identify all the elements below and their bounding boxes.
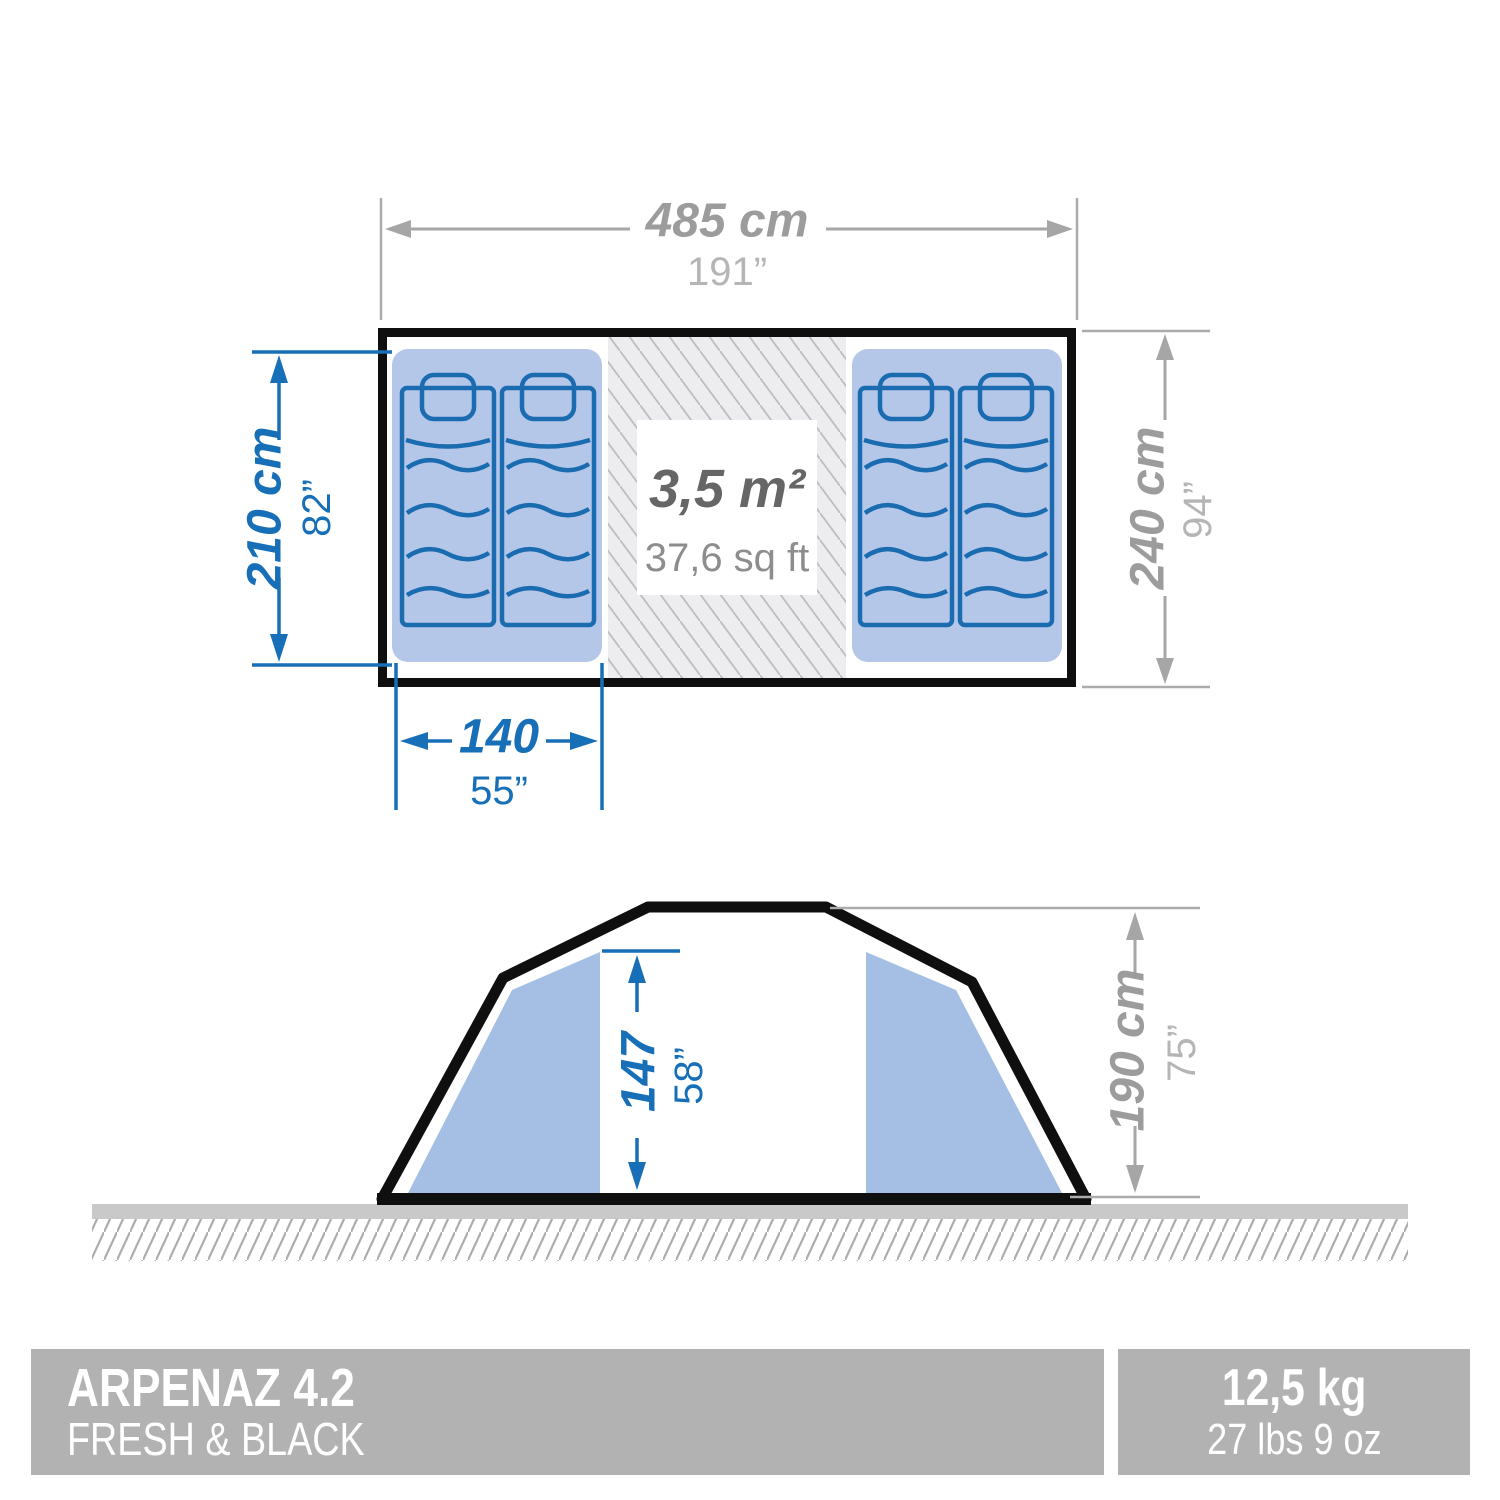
arrowhead-right (1047, 220, 1073, 238)
bedroom-length-in: 82” (295, 479, 339, 537)
bedroom-width-cm: 140 (459, 711, 539, 764)
arrowhead-left (385, 220, 411, 238)
arrowhead-up (270, 355, 288, 383)
depth-in: 94” (1176, 481, 1220, 539)
interior-height-in: 58” (667, 1047, 711, 1105)
interior-height-cm: 147 (613, 1030, 666, 1112)
bedroom-length-cm: 210 cm (239, 427, 292, 591)
weight-lb: 27 lbs 9 oz (1207, 1416, 1382, 1464)
floor-plan: 3,5 m² 37,6 sq ft 485 cm 191” 240 cm 94” (239, 195, 1221, 814)
arrowhead-down (270, 634, 288, 662)
product-line: FRESH & BLACK (67, 1416, 365, 1464)
product-model: ARPENAZ 4.2 (67, 1360, 355, 1416)
living-area-m2: 3,5 m² (649, 459, 807, 519)
product-name-bar: ARPENAZ 4.2 FRESH & BLACK (31, 1349, 1104, 1475)
arrowhead-up (1126, 912, 1144, 940)
dim-depth: 240 cm 94” (1082, 331, 1220, 687)
width-in: 191” (687, 250, 767, 294)
bedroom-width-in: 55” (470, 769, 528, 813)
exterior-height-in: 75” (1160, 1024, 1204, 1082)
weight-kg: 12,5 kg (1222, 1360, 1367, 1416)
arrowhead-up (1156, 334, 1174, 360)
arrowhead-down (1126, 1165, 1144, 1193)
arrowhead-down (1156, 658, 1174, 684)
diagram-canvas: 3,5 m² 37,6 sq ft 485 cm 191” 240 cm 94” (0, 0, 1500, 1500)
arrowhead-left (400, 732, 428, 750)
depth-cm: 240 cm (1122, 427, 1175, 591)
living-area-sqft: 37,6 sq ft (645, 536, 810, 580)
dim-bedroom-length: 210 cm 82” (239, 352, 393, 665)
arrowhead-right (570, 732, 598, 750)
dim-width: 485 cm 191” (381, 195, 1077, 321)
living-area-label: 3,5 m² 37,6 sq ft (637, 420, 817, 595)
ground-band (92, 1204, 1408, 1219)
exterior-height-cm: 190 cm (1102, 969, 1155, 1132)
side-view: 147 58” 190 cm 75” (92, 907, 1408, 1261)
product-weight-bar: 12,5 kg 27 lbs 9 oz (1118, 1349, 1470, 1475)
width-cm: 485 cm (645, 195, 809, 248)
tent-spec-diagram: 3,5 m² 37,6 sq ft 485 cm 191” 240 cm 94” (0, 0, 1500, 1500)
ground-hatch (92, 1219, 1408, 1261)
